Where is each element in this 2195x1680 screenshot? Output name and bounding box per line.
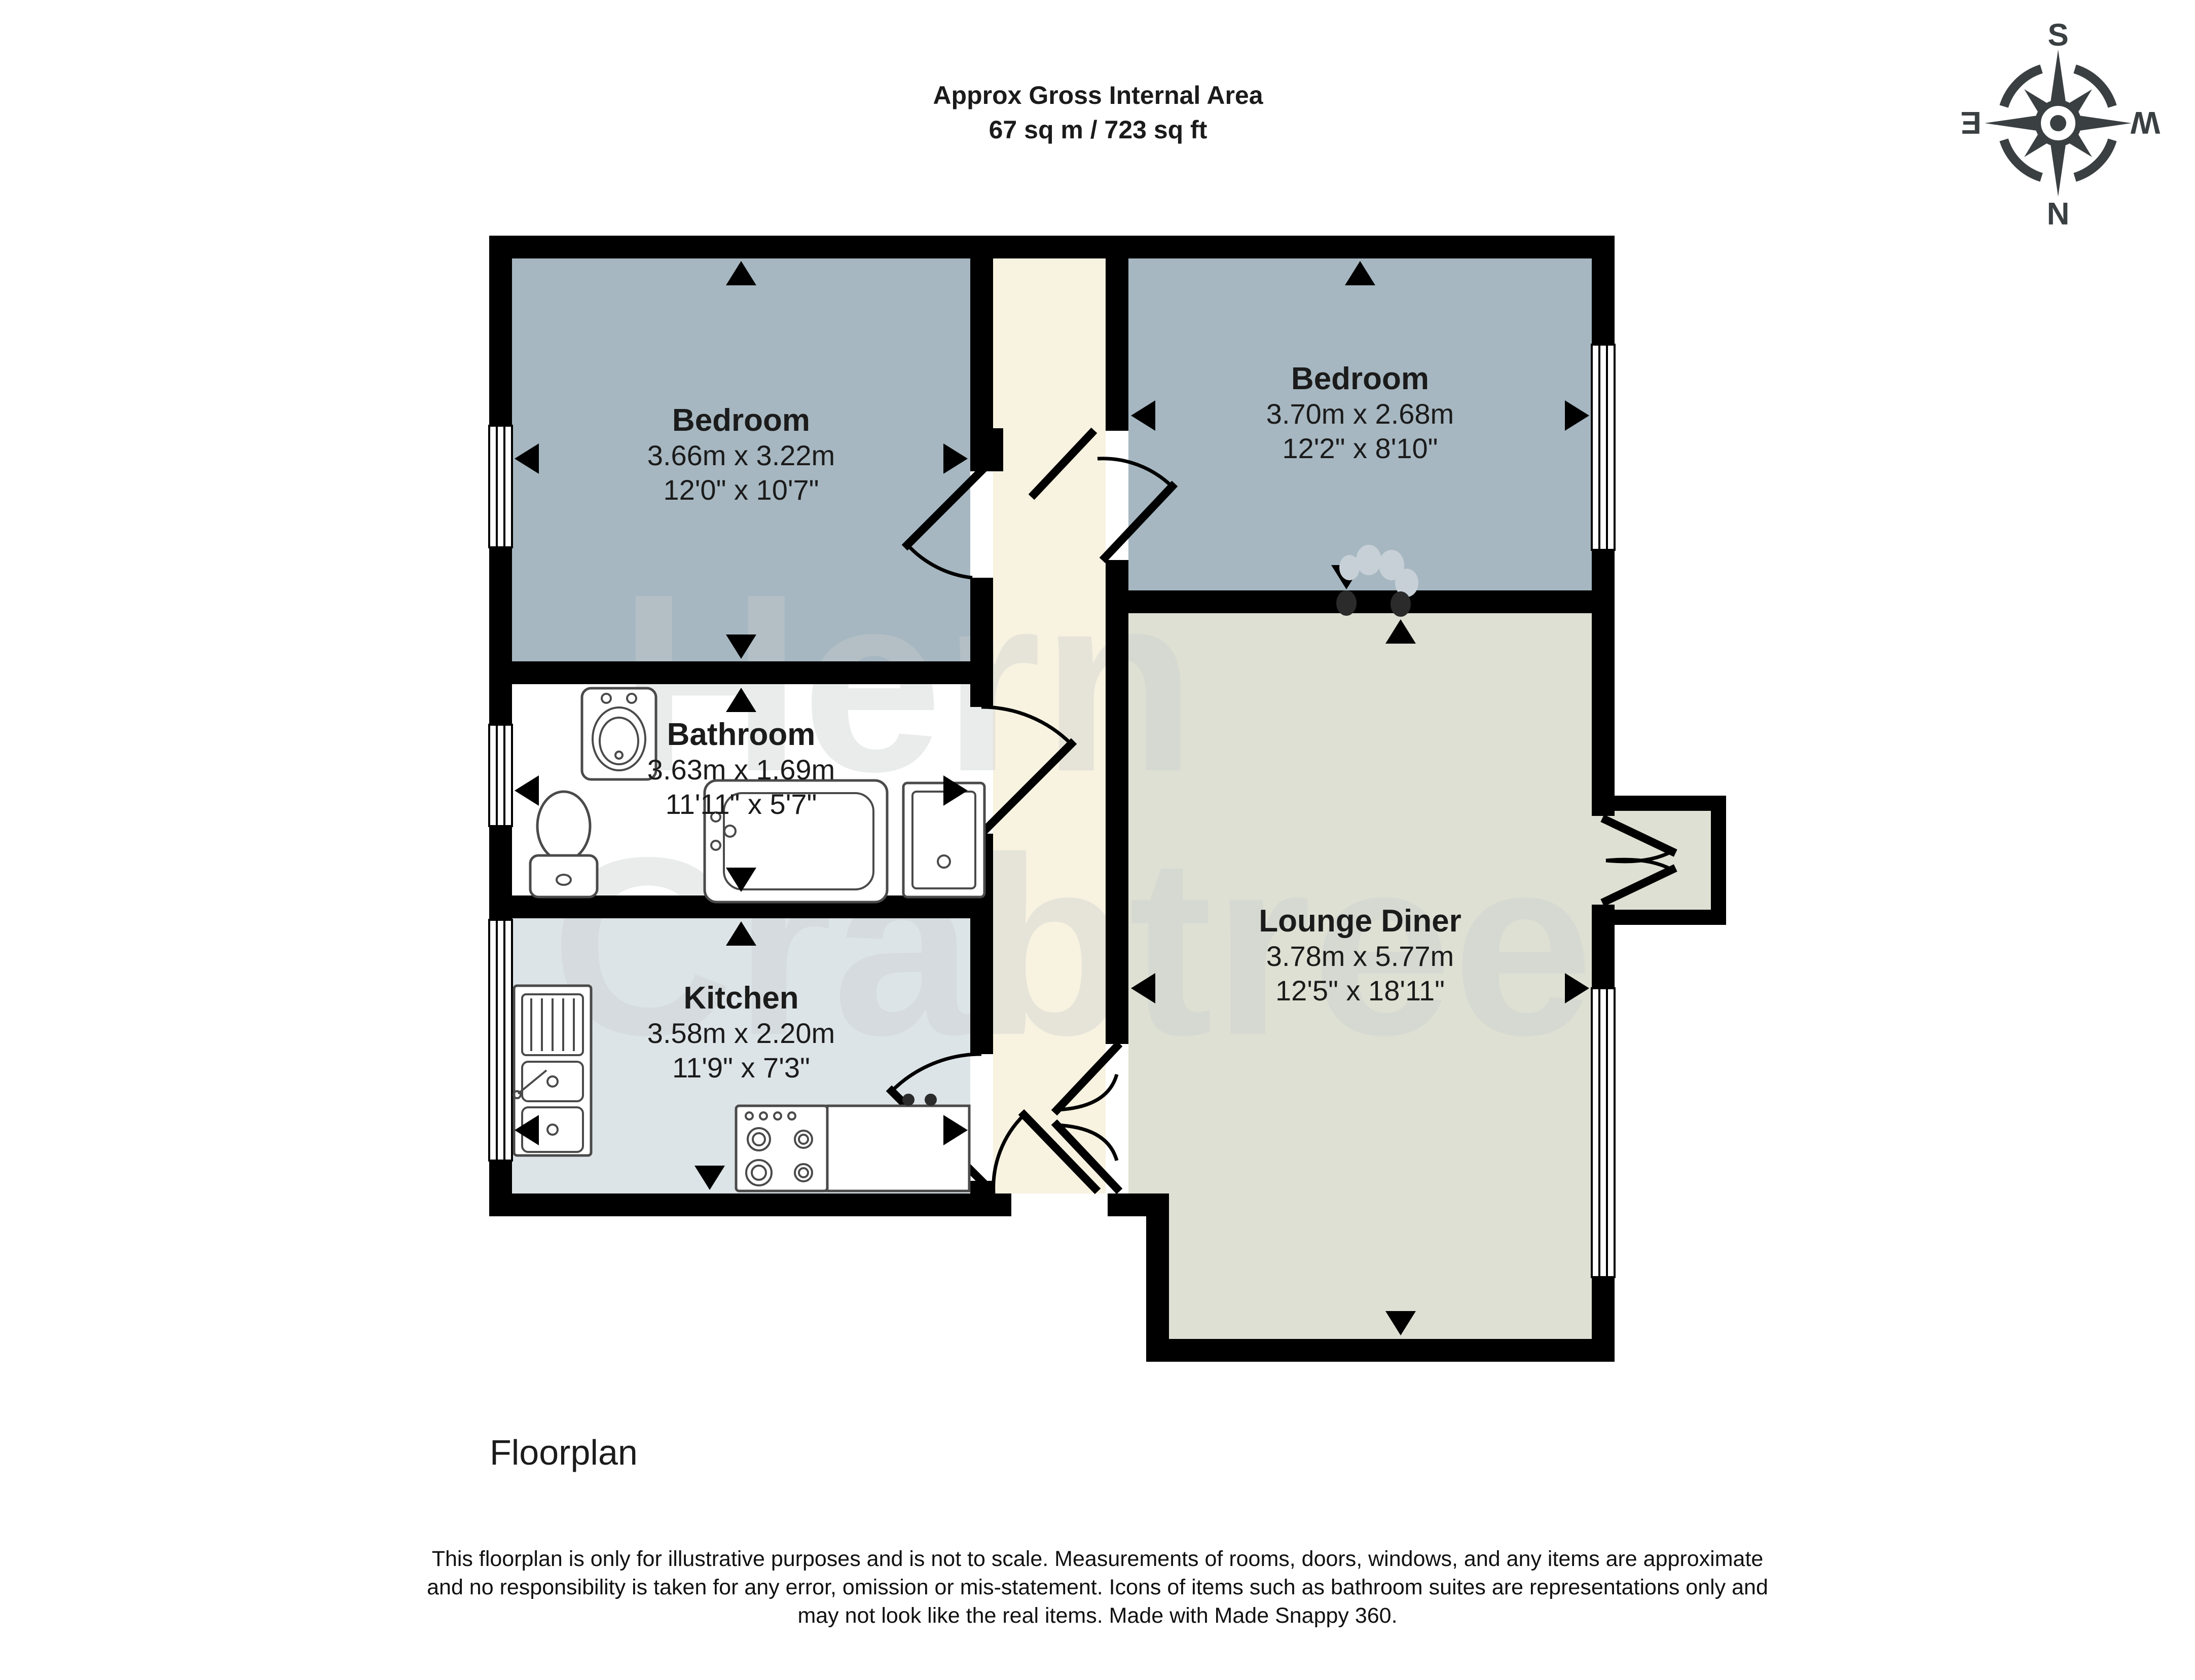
bathroom-name: Bathroom: [667, 717, 816, 752]
window-icon-bedroom1: [489, 426, 512, 547]
hob-icon: [736, 1106, 827, 1191]
kitchen-name: Kitchen: [683, 981, 798, 1016]
disclaimer-line2: and no responsibility is taken for any e…: [427, 1575, 1768, 1599]
wall-lounge-bottom: [1146, 1339, 1615, 1362]
lounge-diner-metric: 3.78m x 5.77m: [1266, 940, 1454, 972]
wall-bay-top: [1615, 796, 1726, 811]
window-icon-lounge: [1592, 988, 1615, 1277]
floorplan-caption: Floorplan: [490, 1433, 638, 1472]
wall-bedroom1-bottom: [489, 661, 993, 684]
wall-door-stub: [970, 428, 1003, 471]
bedroom-1-metric: 3.66m x 3.22m: [647, 439, 835, 471]
wall-bay-right: [1711, 796, 1726, 925]
wall-lounge-step: [1146, 1193, 1169, 1362]
compass-hub-dot: [2050, 115, 2066, 131]
wall-hall-right-b: [1106, 560, 1128, 1044]
lounge-diner-imperial: 12'5" x 18'11": [1275, 975, 1445, 1006]
wall-bedroom2-bottom: [1106, 590, 1615, 613]
bedroom-2-name: Bedroom: [1291, 361, 1429, 396]
compass-label-north: N: [2047, 196, 2070, 231]
bedroom-1-imperial: 12'0" x 10'7": [663, 474, 819, 506]
compass-label-east: E: [1960, 105, 1981, 140]
wall-kitchen-bottom: [489, 1193, 1011, 1216]
bathroom-metric: 3.63m x 1.69m: [647, 754, 835, 786]
kitchen-metric: 3.58m x 2.20m: [647, 1017, 835, 1049]
disclaimer-line1: This floorplan is only for illustrative …: [432, 1547, 1764, 1571]
window-icon-bedroom2: [1592, 345, 1615, 550]
sink-icon: [582, 688, 656, 779]
gross-area-title: Approx Gross Internal Area: [933, 81, 1263, 109]
bathroom-imperial: 11'11" x 5'7": [666, 788, 817, 820]
wall-hall-left-a: [970, 236, 993, 428]
bedroom-1-name: Bedroom: [672, 403, 810, 438]
compass-icon: S N E W: [1960, 18, 2160, 231]
bedroom-2-imperial: 12'2" x 8'10": [1282, 432, 1438, 464]
kitchen-imperial: 11'9" x 7'3": [672, 1052, 810, 1084]
wall-hall-right-a: [1106, 236, 1128, 431]
compass-label-south: S: [2047, 18, 2068, 53]
lounge-diner-name: Lounge Diner: [1259, 904, 1461, 939]
toilet-icon: [530, 792, 597, 897]
wall-top: [489, 236, 1615, 258]
wall-bay-bottom: [1615, 910, 1726, 925]
compass-label-west: W: [2130, 105, 2160, 140]
disclaimer-line3: may not look like the real items. Made w…: [797, 1603, 1397, 1628]
gross-area-value: 67 sq m / 723 sq ft: [989, 116, 1208, 144]
floorplan-canvas: Approx Gross Internal Area 67 sq m / 723…: [0, 0, 2195, 1680]
floorplan-page: Approx Gross Internal Area 67 sq m / 723…: [0, 0, 2195, 1680]
wall-hall-left-b: [970, 578, 993, 707]
bedroom-2-metric: 3.70m x 2.68m: [1266, 398, 1454, 430]
window-icon-kitchen: [489, 920, 512, 1161]
window-icon-bathroom: [489, 725, 512, 826]
